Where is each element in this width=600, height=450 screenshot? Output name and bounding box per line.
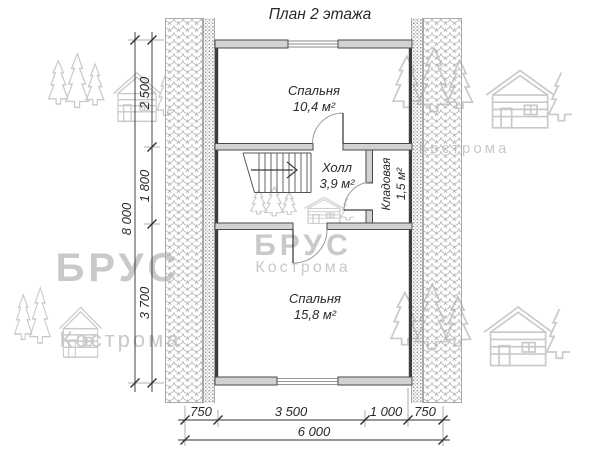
room-label-hall: Холл 3,9 м²: [297, 160, 377, 193]
room-label-bedroom1: Спальня 10,4 м²: [234, 83, 394, 116]
page-title: План 2 этажа: [220, 5, 420, 24]
floor-plan-canvas: БРУС Кострома БРУС Кострома Кострома: [0, 0, 600, 450]
window-top: [289, 39, 338, 48]
room-name: Спальня: [234, 83, 394, 99]
plan-drawing: [0, 0, 600, 450]
door-bedroom1: [313, 113, 344, 144]
door-bedroom2: [293, 230, 327, 264]
dim-label-1000: 1 000: [370, 404, 403, 420]
dim-label-1800: 1 800: [137, 170, 153, 203]
dim-label-750-right: 750: [414, 404, 436, 420]
dim-label-750-left: 750: [190, 404, 212, 420]
stairs-direction-arrow: [251, 162, 297, 178]
room-label-storage: Кладовая 1,5 м²: [379, 144, 409, 224]
room-area: 10,4 м²: [234, 99, 394, 115]
room-label-bedroom2: Спальня 15,8 м²: [235, 291, 395, 324]
dim-label-8000-total: 8 000: [119, 203, 135, 236]
room-area: 1,5 м²: [394, 144, 409, 224]
room-area: 3,9 м²: [297, 176, 377, 192]
room-name: Холл: [297, 160, 377, 176]
dim-label-2500: 2 500: [137, 77, 153, 110]
room-name: Спальня: [235, 291, 395, 307]
room-area: 15,8 м²: [235, 307, 395, 323]
dim-label-3500: 3 500: [275, 404, 308, 420]
dim-label-3700: 3 700: [137, 287, 153, 320]
room-name: Кладовая: [379, 144, 394, 224]
dim-label-6000-total: 6 000: [298, 424, 331, 440]
window-bottom: [278, 376, 338, 385]
